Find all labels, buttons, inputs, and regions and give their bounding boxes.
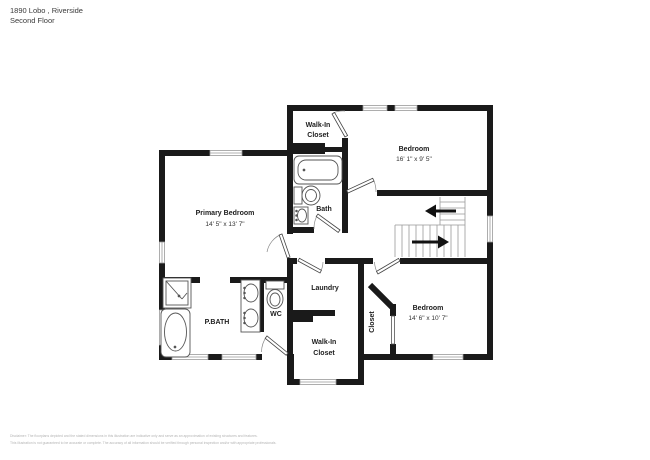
label-wc: WC (270, 311, 282, 318)
sink-bath (294, 207, 308, 224)
bathtub-pbath (161, 309, 190, 357)
door-laundry (298, 258, 323, 273)
toilet-bath (294, 186, 320, 205)
disclaimer: Disclaimer: The floorplans depicted and … (10, 433, 276, 446)
label-bedroom-top: Bedroom (399, 146, 430, 153)
label-closet: Closet (369, 311, 376, 333)
label-laundry: Laundry (311, 285, 339, 292)
label-pbath: P.BATH (205, 319, 230, 326)
shower-pbath (163, 278, 191, 308)
double-vanity-pbath (241, 280, 260, 332)
door-primary-bedroom (267, 234, 290, 258)
label-walk-in-closet-top-1: Walk-In (306, 122, 331, 129)
door-walk-in-closet-top (332, 111, 348, 137)
dims-bedroom-top: 16' 1" x 9' 5" (396, 156, 432, 163)
stair-direction-arrows (412, 205, 456, 249)
toilet-wc (266, 281, 284, 309)
door-bedroom-bottom (375, 258, 401, 274)
arrow-right-head (438, 236, 449, 249)
label-walk-in-closet-bottom-2: Closet (313, 350, 335, 357)
bathtub-bath (294, 156, 342, 184)
label-walk-in-closet-top-2: Closet (307, 132, 329, 139)
dims-bedroom-bottom: 14' 6" x 10' 7" (408, 315, 448, 322)
disclaimer-line-2: This illustration is not guaranteed to b… (10, 440, 276, 447)
floorplan-drawing: Walk-In Closet Bedroom 16' 1" x 9' 5" Pr… (0, 0, 650, 460)
label-walk-in-closet-bottom-1: Walk-In (312, 339, 337, 346)
closet-sliding-door (392, 316, 395, 344)
arrow-right-stem (412, 241, 438, 244)
disclaimer-line-1: Disclaimer: The floorplans depicted and … (10, 433, 276, 440)
dims-primary-bedroom: 14' 5" x 13' 7" (205, 221, 245, 228)
fixtures (161, 156, 342, 357)
floorplan-page: 1890 Lobo , Riverside Second Floor (0, 0, 650, 460)
door-bedroom-top (347, 178, 376, 193)
label-bedroom-bottom: Bedroom (413, 305, 444, 312)
label-primary-bedroom: Primary Bedroom (196, 210, 255, 217)
label-bath: Bath (316, 206, 332, 213)
arrow-left-head (425, 205, 436, 218)
arrow-left-stem (436, 210, 456, 213)
door-bath (314, 214, 340, 232)
door-wc (262, 336, 289, 355)
staircase (395, 197, 465, 257)
